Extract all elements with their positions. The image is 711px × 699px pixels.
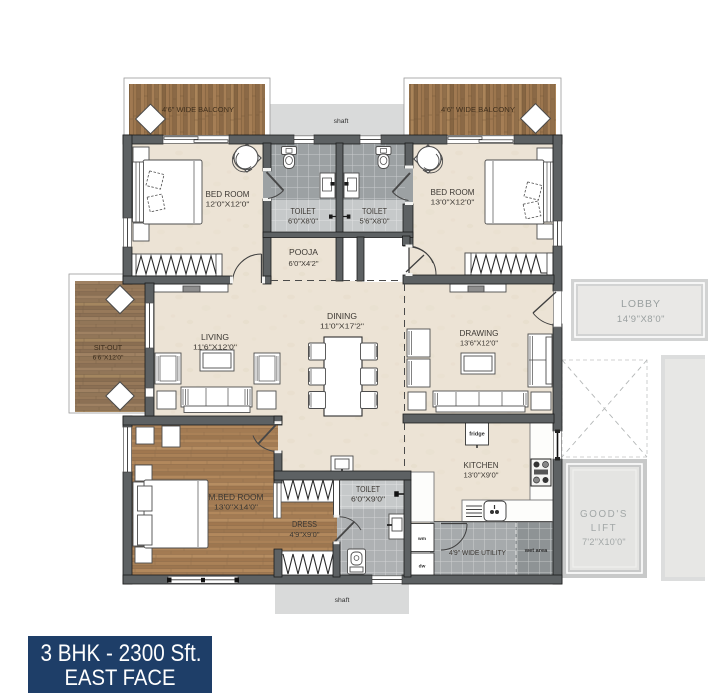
svg-text:13'0"X9'0": 13'0"X9'0" <box>464 473 500 480</box>
svg-text:6'0"X9'0": 6'0"X9'0" <box>351 497 386 504</box>
svg-text:DRAWING: DRAWING <box>460 329 499 338</box>
svg-text:4'6" WIDE BALCONY: 4'6" WIDE BALCONY <box>162 105 234 114</box>
svg-text:fridge: fridge <box>469 432 485 438</box>
svg-text:wet area: wet area <box>524 548 548 554</box>
svg-text:4'9" WIDE UTILITY: 4'9" WIDE UTILITY <box>449 548 506 557</box>
svg-text:KITCHEN: KITCHEN <box>464 461 499 470</box>
svg-text:wm: wm <box>417 537 426 542</box>
svg-text:LIVING: LIVING <box>201 333 229 342</box>
svg-text:BED ROOM: BED ROOM <box>206 190 250 199</box>
svg-text:POOJA: POOJA <box>289 248 319 257</box>
svg-text:4'6" WIDE BALCONY: 4'6" WIDE BALCONY <box>441 105 515 114</box>
svg-text:4'9"X9'0": 4'9"X9'0" <box>290 532 321 539</box>
svg-text:shaft: shaft <box>334 118 349 125</box>
svg-text:LOBBY: LOBBY <box>621 298 661 310</box>
svg-text:TOILET: TOILET <box>362 207 387 216</box>
svg-text:EAST FACE: EAST FACE <box>65 665 176 690</box>
svg-text:6'6"X12'0": 6'6"X12'0" <box>93 355 124 362</box>
svg-text:5'6"X8'0": 5'6"X8'0" <box>360 219 391 226</box>
svg-text:6'0"X4'2": 6'0"X4'2" <box>289 261 320 268</box>
svg-text:M.BED ROOM: M.BED ROOM <box>209 493 264 502</box>
svg-text:TOILET: TOILET <box>291 207 316 216</box>
svg-text:6'0"X8'0": 6'0"X8'0" <box>288 219 319 226</box>
svg-text:11'6"X12'0": 11'6"X12'0" <box>193 345 238 352</box>
svg-text:13'6"X12'0": 13'6"X12'0" <box>460 341 499 348</box>
svg-text:BED ROOM: BED ROOM <box>431 188 475 197</box>
svg-text:shaft: shaft <box>335 597 350 604</box>
svg-text:13'0"X12'0": 13'0"X12'0" <box>431 200 476 207</box>
svg-text:LIFT: LIFT <box>591 523 618 534</box>
svg-text:TOILET: TOILET <box>356 485 380 494</box>
svg-text:12'0"X12'0": 12'0"X12'0" <box>206 202 251 209</box>
svg-text:GOOD'S: GOOD'S <box>580 509 628 520</box>
svg-text:DINING: DINING <box>327 312 357 321</box>
svg-text:11'0"X17'2": 11'0"X17'2" <box>320 324 365 331</box>
svg-text:13'0"X14'0": 13'0"X14'0" <box>214 505 259 512</box>
svg-text:dw: dw <box>419 564 426 570</box>
svg-text:3 BHK - 2300 Sft.: 3 BHK - 2300 Sft. <box>41 640 202 667</box>
svg-text:DRESS: DRESS <box>292 520 317 529</box>
svg-text:7'2"X10'0": 7'2"X10'0" <box>582 537 626 547</box>
svg-text:14'9"X8'0": 14'9"X8'0" <box>617 314 665 325</box>
svg-text:SIT-OUT: SIT-OUT <box>94 343 123 352</box>
